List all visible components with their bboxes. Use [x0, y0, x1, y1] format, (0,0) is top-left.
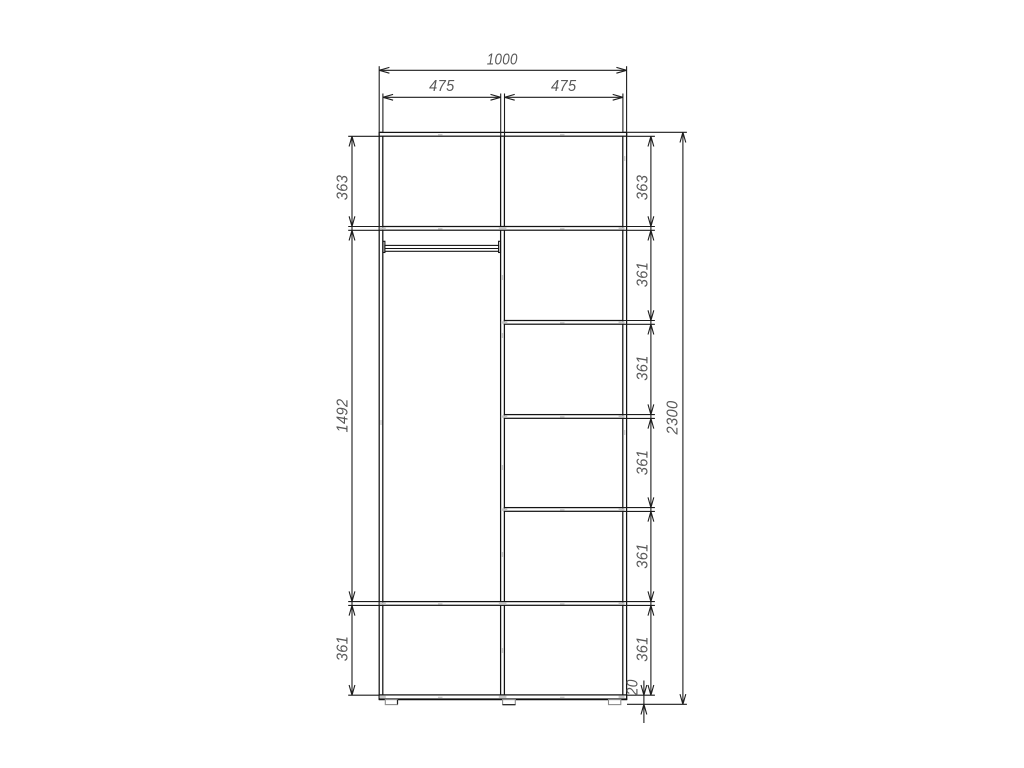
svg-text:363: 363	[335, 175, 352, 201]
svg-text:361: 361	[335, 636, 352, 662]
svg-text:20: 20	[625, 679, 642, 696]
svg-text:361: 361	[635, 543, 652, 569]
svg-text:361: 361	[635, 636, 652, 662]
svg-text:361: 361	[635, 450, 652, 476]
svg-text:475: 475	[429, 78, 455, 95]
svg-text:1492: 1492	[335, 399, 352, 433]
svg-text:1000: 1000	[487, 52, 518, 69]
svg-text:363: 363	[635, 175, 652, 201]
svg-text:2300: 2300	[665, 401, 682, 436]
svg-text:361: 361	[635, 355, 652, 381]
svg-text:475: 475	[551, 78, 577, 95]
svg-text:361: 361	[635, 262, 652, 288]
